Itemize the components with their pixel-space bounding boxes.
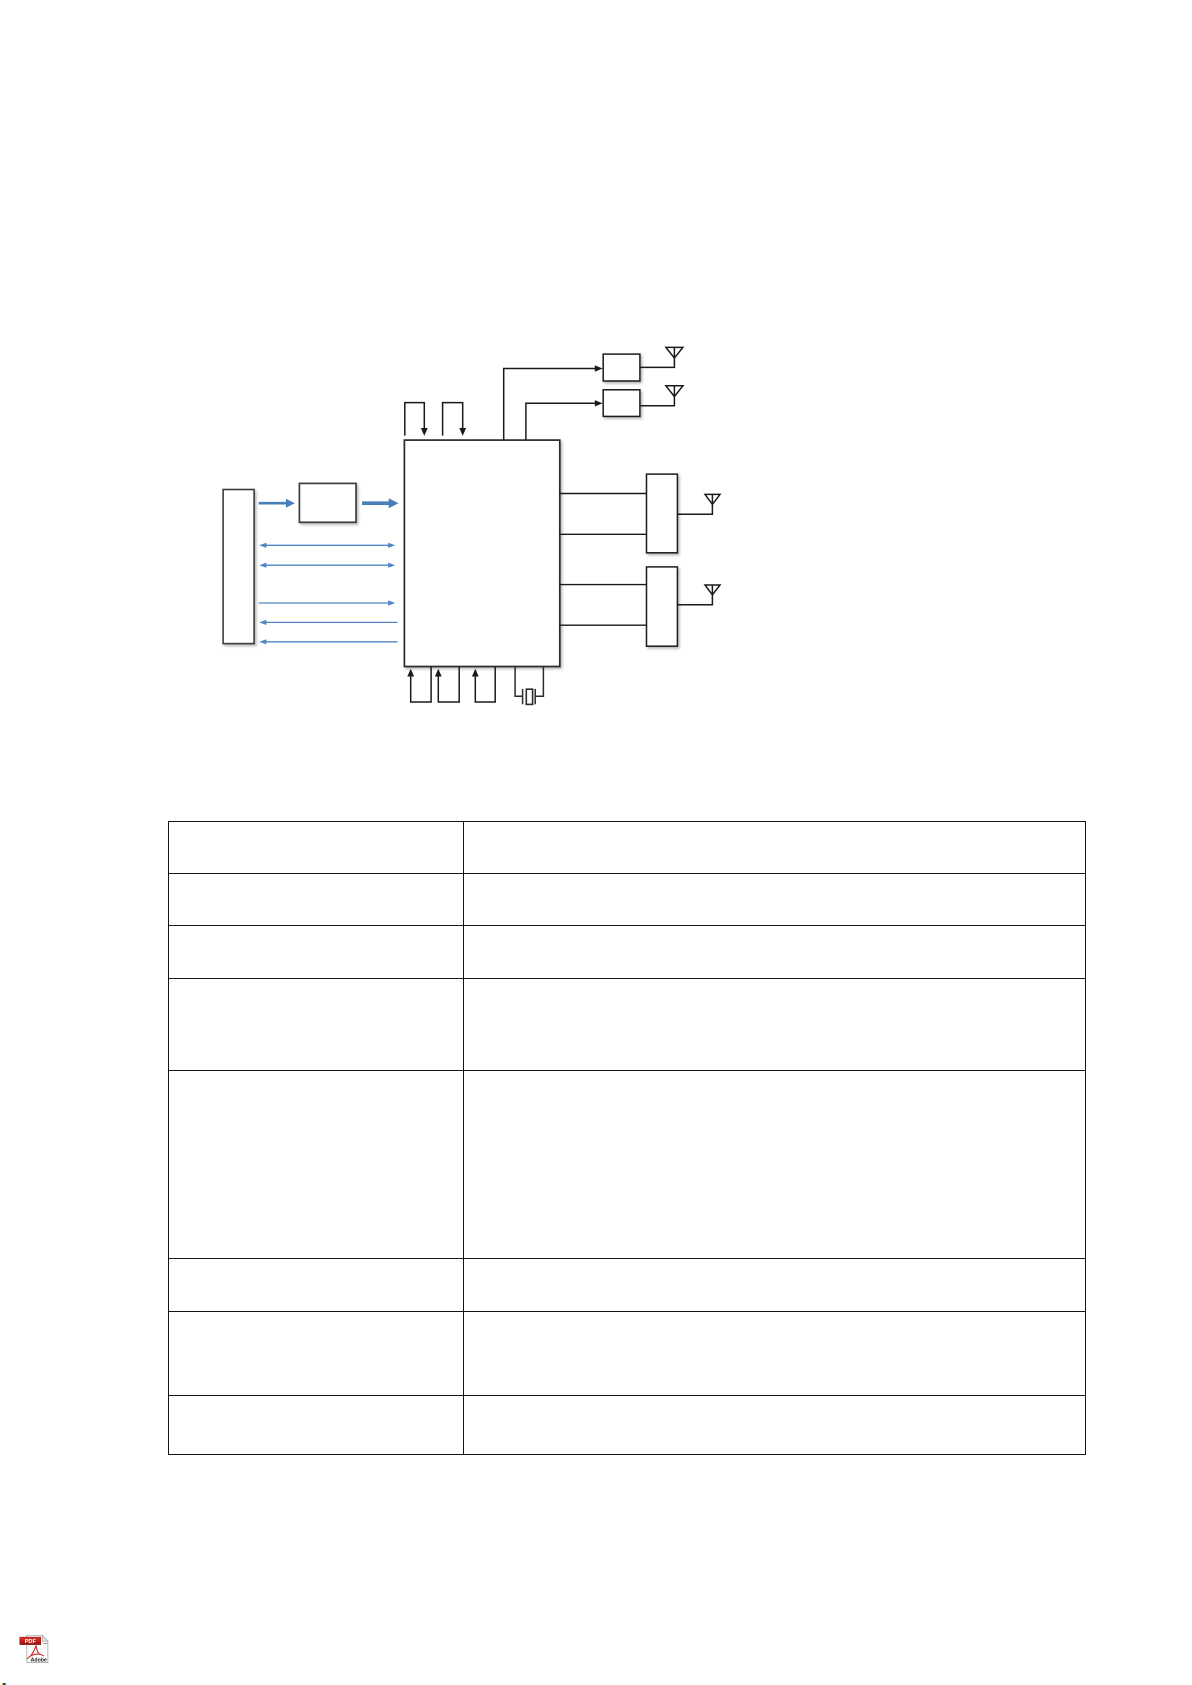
svg-text:Adobe: Adobe	[31, 1657, 47, 1663]
svg-text:PDF: PDF	[25, 1639, 37, 1645]
